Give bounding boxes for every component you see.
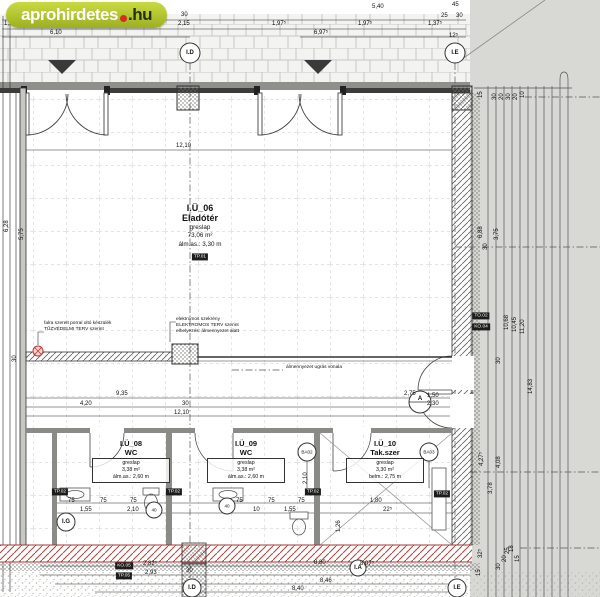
dim-label: 12,10 [174,410,189,416]
dim-label: 75 [298,498,305,504]
room-area: 73,06 m² [130,232,270,241]
watermark-brand: aprohirdetes [21,5,118,25]
watermark-tld: .hu [128,5,152,25]
dim-label: 8,40 [292,586,304,592]
room-label-wc2: I.Ü_09 WC greslap 3,38 m² álm.as.: 2,60 … [203,440,289,483]
dim-label: 1,55 [284,507,296,513]
room-label-eladoter: I.Ü_06 Eladótér greslap 73,06 m² álm.as.… [130,203,270,249]
fire-note-line2: TŰZVÉDELMI TERV szerint [44,327,111,333]
dim-label: 2,75 [404,391,416,397]
room-material: greslap [348,460,422,467]
dim-label: 3,75 [494,228,500,240]
dim-label: 4,08 [496,456,502,468]
dim-label: 30 [492,93,498,100]
dim-label: 2,30 [427,401,439,407]
type-badge-tp02: TP.02 [52,488,68,495]
dim-label: 14,83 [528,379,534,394]
electrical-note: elektromos szekrény ELEKTROMOS TERV szer… [176,317,239,335]
electrical-cabinet [172,344,198,364]
room-area: 3,30 m² [348,467,422,474]
dim-label: 2,10 [127,507,139,513]
grid-marker-label: I.D [188,585,196,591]
watermark-dot-icon [120,15,127,22]
type-badge-tp05: TP.05 [116,572,132,579]
dim-label: 1,97⁵ [272,21,286,27]
dim-label: 1,26 [336,520,342,532]
type-badge-tp02: TP.02 [305,488,321,495]
dim-label: 9,35 [116,391,128,397]
dim-label: 1,37⁵ [428,21,442,27]
dim-label: 15 [515,555,521,562]
room-label-takszer: I.Ü_10 Tak.szer greslap 3,30 m² belm.: 2… [342,440,428,483]
dim-label: 11,20 [520,319,526,334]
room-area: 3,38 m² [94,467,168,474]
dim-label: 75 [268,498,275,504]
room-name: WC [88,449,174,458]
type-badge-to02: TO.02 [472,312,489,319]
dim-label: 1,97⁵ [358,21,372,27]
room-height: álm.as.: 2,60 m [209,474,283,481]
dim-label: 1,55 [80,507,92,513]
fixture-marker-label: BA02 [301,450,312,455]
dim-label: 8,80 [314,560,326,566]
dim-label: 2,10 [303,472,309,484]
room-name: Tak.szer [342,449,428,458]
grid-marker-label: I.D [186,50,194,56]
fixture-marker-label: 40 [151,508,156,513]
dim-label: 4,27⁵ [479,452,485,466]
room-height: belm.: 2,75 m [348,474,422,481]
dim-label: 12⁵ [449,33,458,39]
dim-label: 30 [456,13,463,19]
type-badge-ko04: KO.04 [472,323,490,330]
grid-marker-label: I.A [354,565,362,571]
fixture-marker-label: BA03 [423,450,434,455]
dim-label: 75 [100,498,107,504]
dim-label: 10,68 [504,315,510,330]
dim-label: 30 [496,563,502,570]
dim-label: 3,78 [488,482,494,494]
dim-label: 30 [12,355,18,362]
dim-label: 6,28 [4,220,10,232]
room-material: greslap [209,460,283,467]
dim-label: 2,93 [145,570,157,576]
dim-label: 75 [236,498,243,504]
dim-label: 2,82⁵ [143,561,157,567]
dim-label: 20 [502,555,508,562]
dim-label: 25 [441,13,448,19]
room-id: I.Ü_06 [130,203,270,213]
dim-label: 20 [499,93,505,100]
floorplan-canvas: 1,97⁵ 6,10 1,97⁵ 30 2,15 5,40 1,97⁵ 6,97… [0,0,600,597]
room-material: greslap [130,224,270,233]
room-area: 3,38 m² [209,467,283,474]
right-margin [470,0,600,597]
watermark-badge: aprohirdetes .hu [6,2,167,28]
dim-label: 6,10 [50,30,62,36]
section-marker-label: A [418,396,422,402]
grid-marker-label: I.E [451,50,458,56]
dim-label: 15 [476,569,482,576]
ceiling-step-note: álmennyezet ugrás vonala [286,365,342,371]
dim-label: 10 [520,91,526,98]
type-badge-ko05: KO.05 [115,562,133,569]
dim-label: 15 [478,91,484,98]
dim-label: 4,20 [80,401,92,407]
dim-label: 5,40 [372,4,384,10]
dim-label: 75 [130,498,137,504]
dim-label: 32⁵ [478,549,484,558]
room-name: WC [203,449,289,458]
dim-label: 6,97⁵ [314,30,328,36]
dim-label: 10,45 [512,317,518,332]
dim-label: 30 [186,568,193,574]
dim-label: 30 [483,243,489,250]
right-wall [452,93,472,545]
dim-label: 30 [181,12,188,18]
electrical-note-line3: elhelyezés: álmennyezet alatt [176,329,239,335]
dim-label: 20 [513,93,519,100]
bottom-wall [0,545,472,562]
dim-label: 8,46 [320,578,332,584]
dim-label: 75 [68,498,75,504]
dim-label: 1,50 [427,393,439,399]
room-height: álm.as.: 2,60 m [94,474,168,481]
dim-label: 10 [253,507,260,513]
ground-texture [0,572,600,597]
fire-note: falra szerelt porral oltó készülék TŰZVÉ… [44,321,111,333]
type-badge-tp01: TP.01 [192,253,208,260]
dim-label: 30 [496,357,502,364]
room-height: álm.as.: 3,30 m [130,241,270,250]
dim-label: 18 [509,545,515,552]
type-badge-tp02: TP.02 [166,488,182,495]
dim-label: 1,80 [370,498,382,504]
dim-label: 6,88 [478,226,484,238]
dim-label: 30 [182,401,189,407]
type-badge-tp02: TP.02 [434,490,450,497]
room-label-wc1: I.Ü_08 WC greslap 3,38 m² álm.as.: 2,60 … [88,440,174,483]
dim-label: 2,15 [178,21,190,27]
fire-extinguisher-symbol [33,346,43,356]
dim-label: 30 [506,93,512,100]
fixture-marker-label: 40 [224,504,229,509]
room-material: greslap [94,460,168,467]
room-name: Eladótér [130,213,270,223]
dim-label: 5,75 [19,228,25,240]
dim-label: 12,10 [176,143,191,149]
grid-marker-label: I.G [62,519,70,525]
grid-marker-label: I.E [453,585,460,591]
dim-label: 22⁵ [383,507,392,513]
dim-label: 45 [452,2,459,8]
left-wall [20,88,26,545]
